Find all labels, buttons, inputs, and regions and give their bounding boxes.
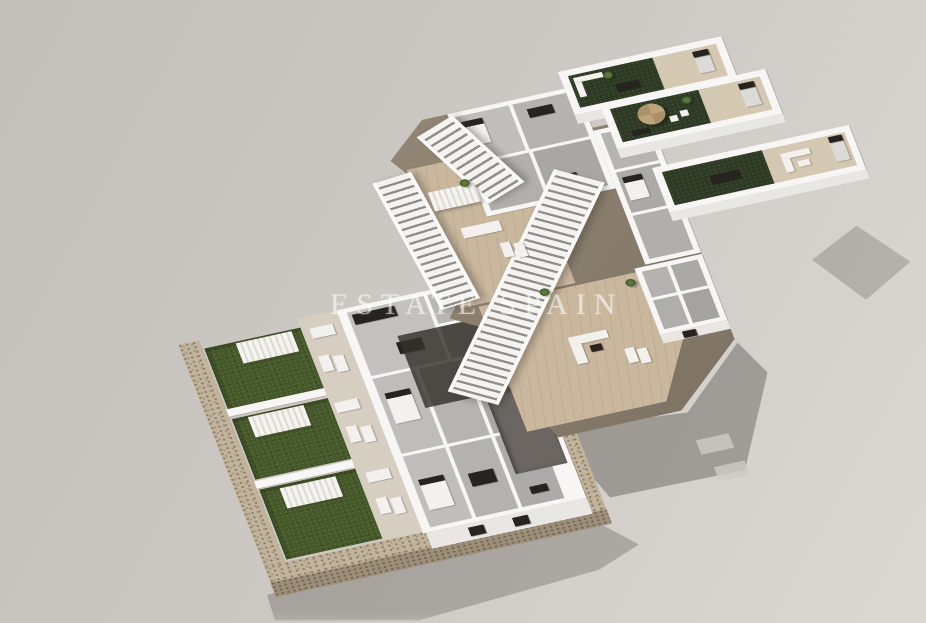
watermark-text: ESTATE SPAIN <box>330 288 623 322</box>
floorplan-render-scene: ESTATE SPAIN <box>0 0 926 623</box>
cast-shadow-roof-terrace <box>800 218 920 313</box>
